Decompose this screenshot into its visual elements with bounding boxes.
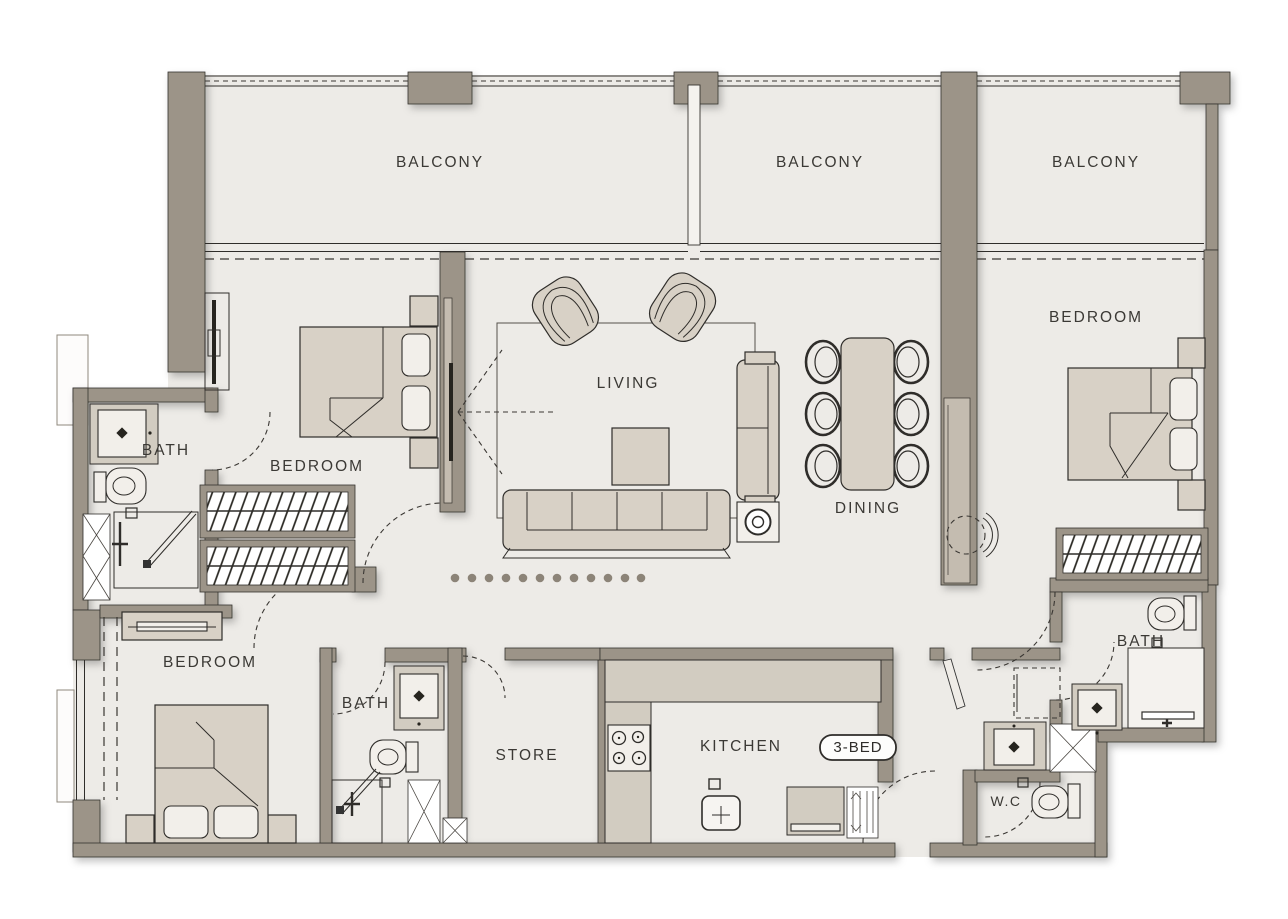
sofa <box>503 490 730 558</box>
service-shaft <box>1050 724 1096 772</box>
side-table <box>737 502 779 542</box>
bedroom-1-label: BEDROOM <box>270 458 364 475</box>
service-shaft <box>83 514 110 600</box>
bedroom-2-label: BEDROOM <box>163 654 257 671</box>
dining-label: DINING <box>835 500 901 517</box>
dining-set <box>806 338 928 490</box>
floor-plan-canvas: BALCONY BALCONY BALCONY BEDROOM LIVING D… <box>0 0 1288 919</box>
balcony-3-label: BALCONY <box>1052 154 1140 171</box>
wardrobe <box>1056 528 1208 580</box>
kitchen-label: KITCHEN <box>700 738 782 755</box>
coffee-table <box>612 428 669 485</box>
bath-sink <box>1072 684 1122 735</box>
bath-1-label: BATH <box>142 442 190 459</box>
bath-sink <box>984 722 1046 770</box>
fridge <box>787 787 844 835</box>
store-label: STORE <box>495 747 558 764</box>
bath-sink <box>394 666 444 730</box>
bath-3-label: BATH <box>1117 633 1165 650</box>
bedroom-3-furniture <box>1056 338 1208 580</box>
stove <box>608 725 650 771</box>
balcony-2-label: BALCONY <box>776 154 864 171</box>
wc-label: W.C <box>991 793 1022 809</box>
unit-type-badge: 3-BED <box>820 735 896 760</box>
kitchen-counter <box>605 660 881 702</box>
loveseat <box>737 352 779 508</box>
kitchen-counter <box>605 702 651 843</box>
bath-2-label: BATH <box>342 695 390 712</box>
dining-table <box>841 338 894 490</box>
bedroom-3-label: BEDROOM <box>1049 309 1143 326</box>
exterior-ledge <box>57 690 74 802</box>
floor-plan-drawing: BALCONY BALCONY BALCONY BEDROOM LIVING D… <box>0 0 1288 919</box>
dresser <box>122 612 222 640</box>
balcony-divider-wall <box>688 85 700 245</box>
unit-type-badge-text: 3-BED <box>833 739 882 756</box>
living-label: LIVING <box>597 375 660 392</box>
balcony-1-label: BALCONY <box>396 154 484 171</box>
louver-shaft <box>847 787 878 838</box>
shower <box>1128 648 1204 728</box>
kitchen-sink <box>702 796 740 830</box>
